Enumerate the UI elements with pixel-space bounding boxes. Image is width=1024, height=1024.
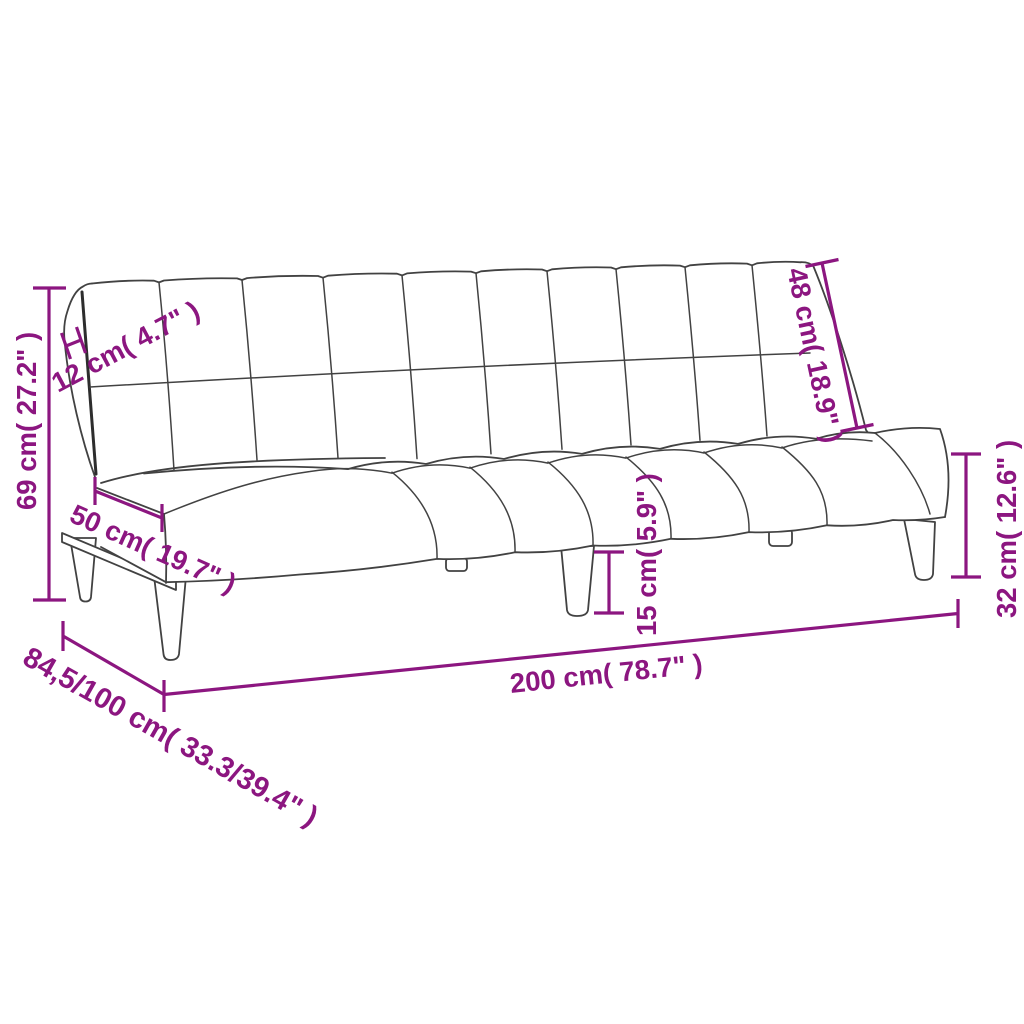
svg-text:32 cm( 12.6" ): 32 cm( 12.6" ) bbox=[991, 440, 1022, 618]
svg-text:15 cm( 5.9" ): 15 cm( 5.9" ) bbox=[631, 473, 662, 636]
svg-text:69 cm( 27.2" ): 69 cm( 27.2" ) bbox=[11, 332, 42, 510]
